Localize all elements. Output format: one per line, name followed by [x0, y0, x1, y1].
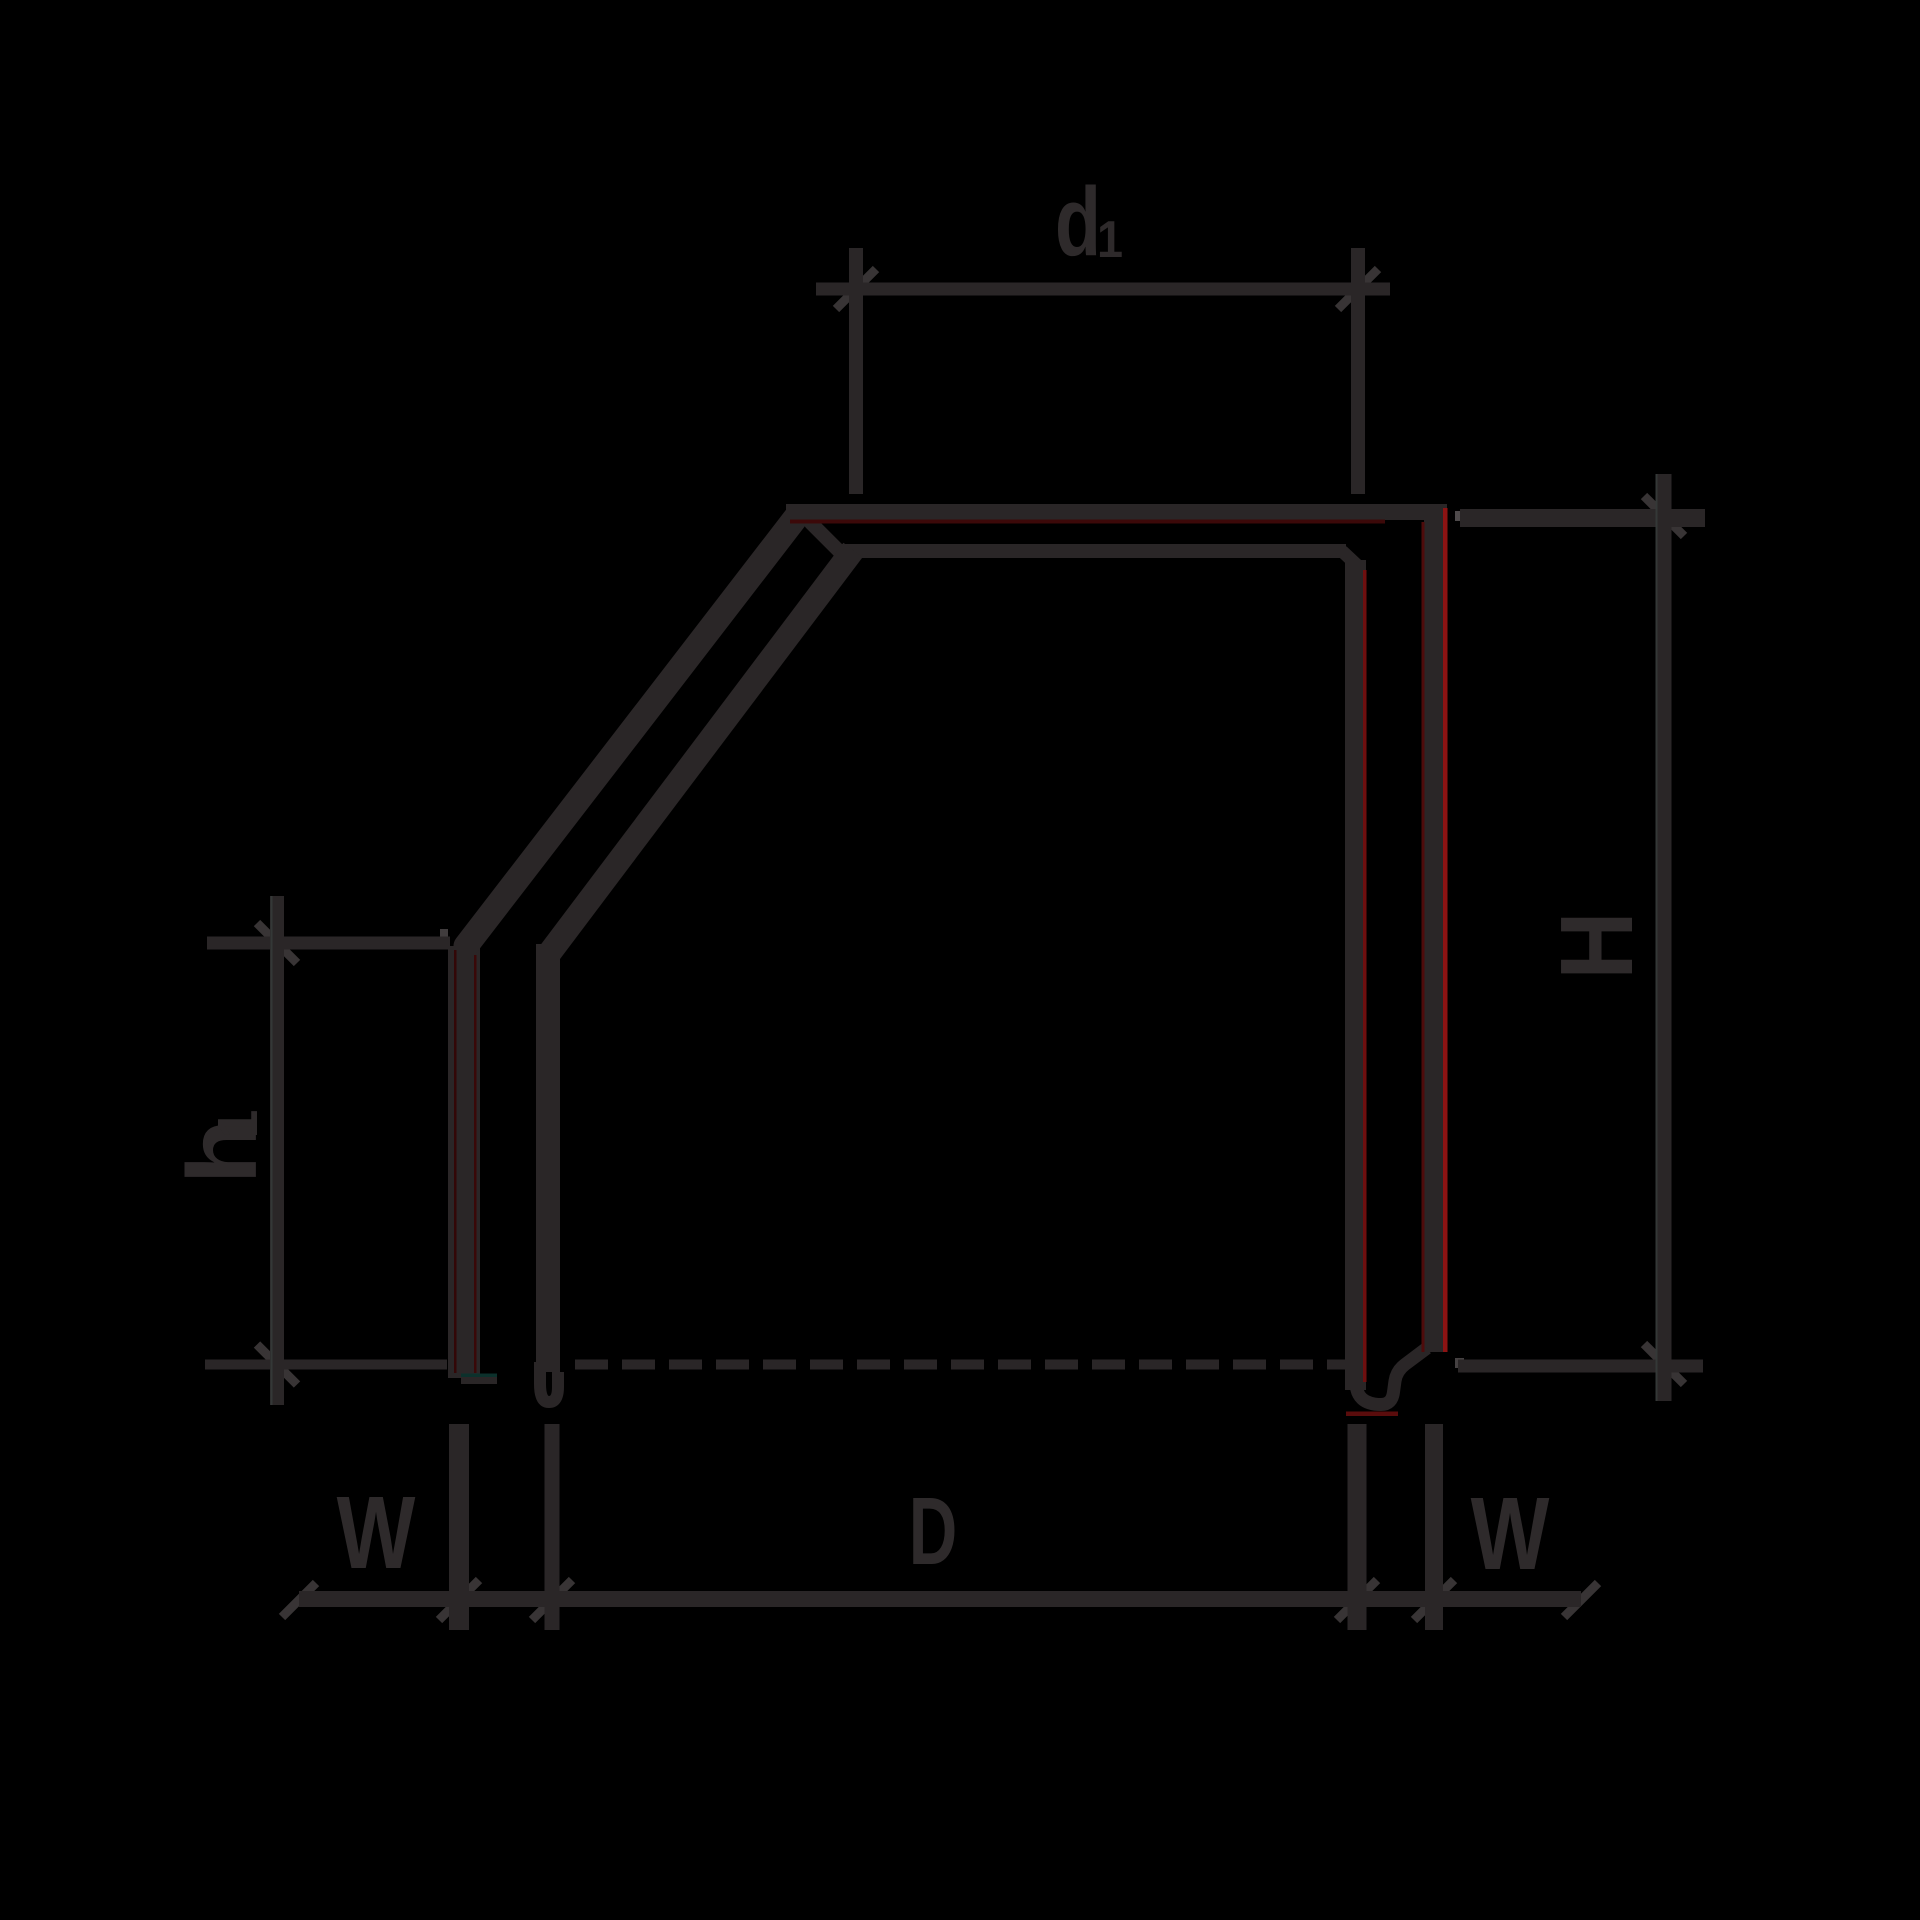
svg-text:H: H	[1538, 911, 1654, 979]
svg-text:1: 1	[207, 1110, 270, 1139]
svg-text:d: d	[1055, 168, 1101, 276]
svg-text:W: W	[337, 1475, 416, 1590]
svg-text:W: W	[1471, 1476, 1550, 1591]
svg-text:1: 1	[1097, 211, 1123, 269]
svg-text:D: D	[909, 1477, 958, 1585]
